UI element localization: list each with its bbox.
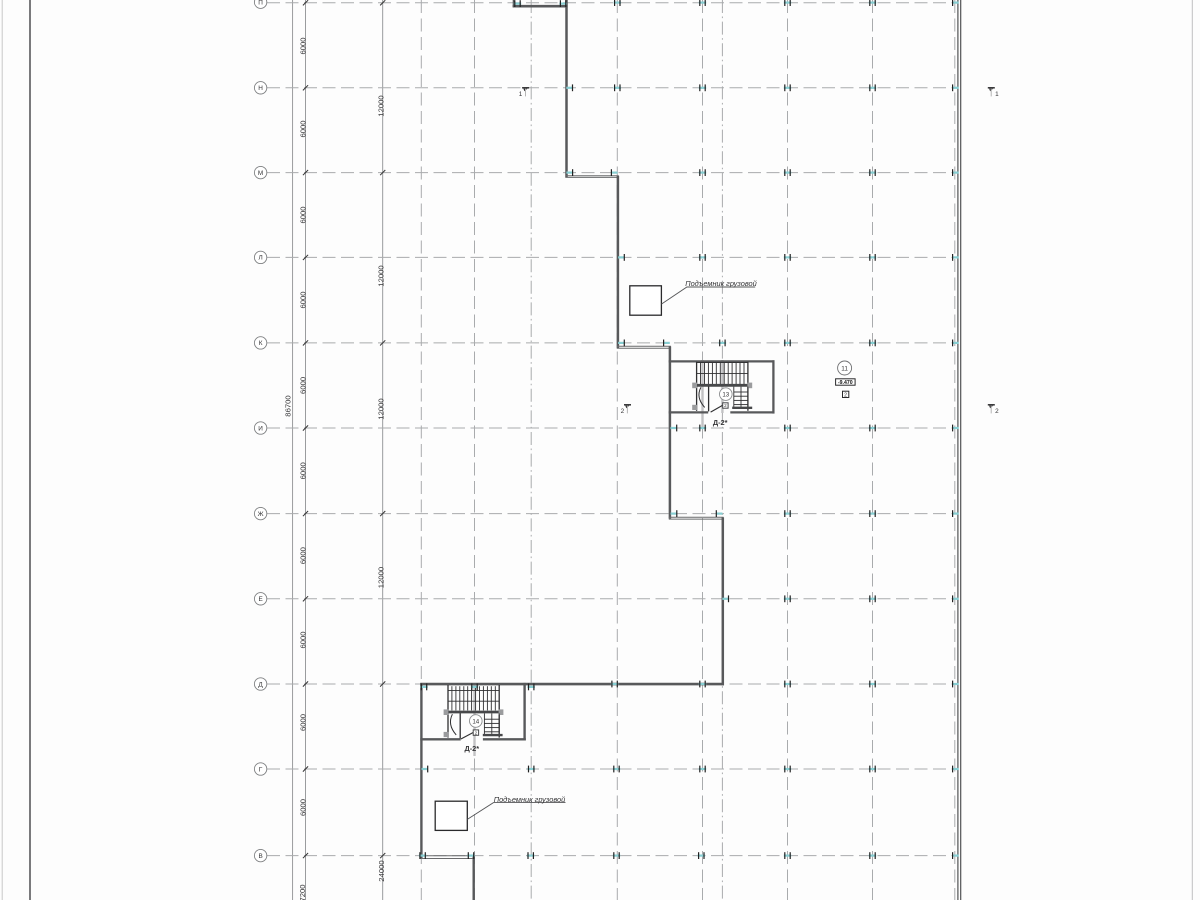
svg-text:6000: 6000: [299, 799, 308, 816]
svg-text:Д: Д: [258, 681, 263, 688]
svg-text:М: М: [258, 170, 263, 177]
svg-text:14: 14: [472, 718, 479, 725]
svg-text:П: П: [258, 0, 263, 7]
svg-text:6000: 6000: [299, 714, 308, 731]
svg-text:6000: 6000: [299, 206, 308, 223]
svg-text:86700: 86700: [284, 395, 293, 416]
svg-text:24000: 24000: [377, 860, 386, 881]
svg-text:Д-2*: Д-2*: [464, 744, 479, 753]
svg-text:2: 2: [844, 392, 847, 398]
svg-text:Е: Е: [258, 596, 262, 603]
svg-text:К: К: [259, 340, 263, 347]
svg-text:2: 2: [724, 403, 727, 408]
svg-text:13: 13: [722, 392, 729, 399]
svg-text:6000: 6000: [299, 37, 308, 54]
svg-text:Г: Г: [259, 766, 263, 773]
svg-text:Подъемник грузовой: Подъемник грузовой: [685, 279, 757, 288]
svg-text:В: В: [258, 853, 262, 860]
svg-text:12000: 12000: [377, 265, 386, 286]
svg-text:Л: Л: [258, 255, 262, 262]
svg-text:-9.470: -9.470: [838, 380, 853, 386]
svg-text:2: 2: [475, 730, 478, 735]
svg-text:6000: 6000: [299, 120, 308, 137]
svg-text:Подъемник грузовой: Подъемник грузовой: [494, 795, 566, 804]
svg-text:6000: 6000: [299, 377, 308, 394]
svg-text:1: 1: [995, 91, 999, 98]
svg-text:Ж: Ж: [258, 511, 264, 518]
svg-text:12000: 12000: [377, 95, 386, 116]
svg-text:2: 2: [621, 408, 625, 415]
svg-text:6000: 6000: [299, 547, 308, 564]
svg-text:И: И: [258, 425, 263, 432]
svg-text:1: 1: [519, 91, 523, 98]
svg-text:Д-2*: Д-2*: [713, 418, 728, 427]
svg-text:12000: 12000: [377, 567, 386, 588]
svg-text:11: 11: [841, 365, 848, 372]
svg-text:6000: 6000: [299, 462, 308, 479]
svg-text:7200: 7200: [298, 884, 307, 900]
svg-text:12000: 12000: [377, 398, 386, 419]
svg-text:2: 2: [995, 408, 999, 415]
svg-text:6000: 6000: [299, 631, 308, 648]
svg-text:6000: 6000: [299, 291, 308, 308]
svg-text:Н: Н: [258, 85, 263, 92]
